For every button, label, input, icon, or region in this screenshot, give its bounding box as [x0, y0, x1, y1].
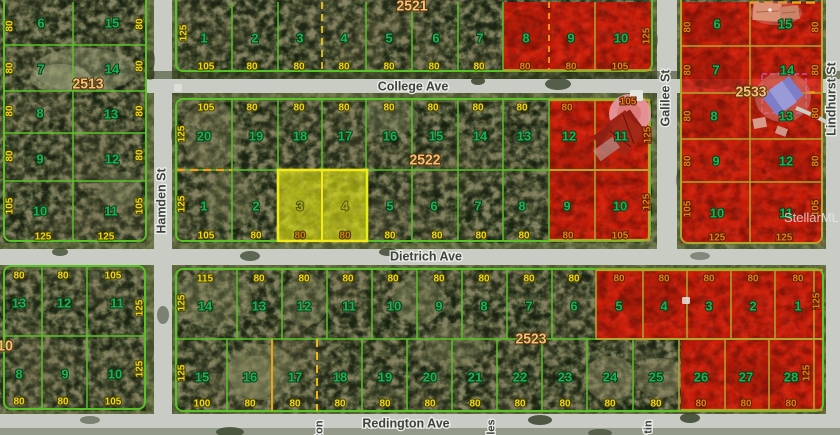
svg-text:7: 7	[525, 299, 532, 314]
svg-text:9: 9	[435, 299, 442, 314]
svg-text:80: 80	[811, 21, 822, 33]
svg-text:80: 80	[683, 155, 694, 167]
svg-text:19: 19	[378, 370, 392, 385]
svg-text:105: 105	[612, 62, 629, 73]
svg-text:10: 10	[108, 367, 122, 382]
svg-text:2521: 2521	[397, 0, 428, 15]
svg-text:80: 80	[604, 399, 616, 410]
svg-text:9: 9	[567, 31, 574, 46]
svg-text:80: 80	[5, 20, 16, 32]
svg-text:80: 80	[478, 274, 490, 285]
svg-text:105: 105	[5, 197, 16, 214]
svg-text:11: 11	[104, 204, 118, 219]
svg-text:8: 8	[480, 299, 487, 314]
svg-text:28: 28	[784, 370, 798, 385]
svg-text:16: 16	[243, 370, 257, 385]
svg-text:10: 10	[387, 299, 401, 314]
svg-text:80: 80	[13, 271, 25, 282]
svg-text:14: 14	[198, 299, 213, 314]
svg-text:125: 125	[135, 360, 146, 377]
svg-text:18: 18	[293, 129, 307, 144]
svg-text:9: 9	[61, 367, 68, 382]
svg-text:80: 80	[428, 62, 440, 73]
svg-text:80: 80	[703, 274, 715, 285]
svg-text:80: 80	[5, 62, 16, 74]
svg-text:80: 80	[135, 149, 146, 161]
svg-text:24: 24	[603, 370, 618, 385]
svg-text:1: 1	[794, 299, 801, 314]
svg-text:3: 3	[296, 199, 303, 214]
svg-text:Galilee St: Galilee St	[659, 69, 673, 127]
svg-text:125: 125	[177, 195, 188, 212]
svg-text:6: 6	[713, 17, 720, 32]
svg-text:9: 9	[563, 199, 570, 214]
svg-text:15: 15	[778, 17, 792, 32]
svg-text:80: 80	[811, 107, 822, 119]
svg-text:19: 19	[249, 129, 263, 144]
svg-text:80: 80	[792, 274, 804, 285]
svg-text:6: 6	[37, 16, 44, 31]
svg-text:9: 9	[712, 154, 719, 169]
svg-text:125: 125	[135, 299, 146, 316]
svg-text:80: 80	[431, 231, 443, 242]
svg-text:80: 80	[518, 231, 530, 242]
svg-text:8: 8	[15, 367, 22, 382]
svg-text:8: 8	[518, 199, 525, 214]
svg-text:7: 7	[476, 31, 483, 46]
svg-text:125: 125	[179, 24, 190, 41]
svg-text:25: 25	[649, 370, 663, 385]
svg-text:80: 80	[379, 399, 391, 410]
svg-text:80: 80	[338, 62, 350, 73]
svg-text:22: 22	[513, 370, 527, 385]
svg-text:125: 125	[642, 27, 653, 44]
svg-text:3: 3	[705, 299, 712, 314]
svg-text:80: 80	[383, 103, 395, 114]
svg-text:6: 6	[432, 31, 439, 46]
svg-text:2513: 2513	[73, 77, 104, 93]
svg-text:80: 80	[289, 399, 301, 410]
svg-text:13: 13	[12, 296, 26, 311]
svg-text:13: 13	[779, 109, 793, 124]
svg-text:4: 4	[341, 199, 349, 214]
svg-text:Dietrich Ave: Dietrich Ave	[390, 250, 462, 264]
svg-text:100: 100	[194, 399, 211, 410]
svg-text:12: 12	[297, 299, 311, 314]
svg-text:18: 18	[333, 370, 347, 385]
svg-text:11: 11	[614, 129, 628, 144]
svg-text:80: 80	[244, 399, 256, 410]
svg-text:6: 6	[430, 199, 437, 214]
svg-text:12: 12	[105, 152, 119, 167]
svg-text:80: 80	[568, 274, 580, 285]
svg-text:80: 80	[57, 271, 69, 282]
svg-text:14: 14	[473, 129, 488, 144]
svg-text:80: 80	[519, 62, 531, 73]
svg-text:80: 80	[342, 274, 354, 285]
svg-text:5: 5	[615, 299, 622, 314]
svg-text:80: 80	[683, 64, 694, 76]
svg-text:12: 12	[57, 296, 71, 311]
svg-text:80: 80	[135, 105, 146, 117]
svg-text:80: 80	[613, 274, 625, 285]
svg-text:20: 20	[423, 370, 437, 385]
svg-text:9: 9	[36, 152, 43, 167]
svg-text:80: 80	[5, 105, 16, 117]
svg-text:125: 125	[776, 233, 793, 244]
svg-text:80: 80	[740, 399, 752, 410]
svg-text:80: 80	[253, 274, 265, 285]
svg-text:80: 80	[250, 231, 262, 242]
svg-text:5: 5	[385, 31, 392, 46]
svg-text:80: 80	[294, 231, 306, 242]
svg-text:14: 14	[780, 63, 795, 78]
svg-text:les: les	[486, 419, 498, 434]
svg-text:80: 80	[433, 274, 445, 285]
svg-text:14: 14	[105, 62, 120, 77]
svg-text:105: 105	[105, 397, 122, 408]
svg-text:80: 80	[135, 18, 146, 30]
svg-text:105: 105	[198, 62, 215, 73]
svg-text:8: 8	[710, 109, 717, 124]
svg-text:Redington Ave: Redington Ave	[362, 417, 449, 431]
svg-text:1: 1	[200, 199, 207, 214]
svg-text:College Ave: College Ave	[378, 80, 449, 94]
svg-text:8: 8	[36, 106, 43, 121]
svg-text:ton: ton	[314, 420, 326, 435]
svg-text:3: 3	[296, 31, 303, 46]
svg-text:2: 2	[252, 199, 259, 214]
svg-text:26: 26	[694, 370, 708, 385]
svg-text:2533: 2533	[736, 85, 767, 101]
svg-text:15: 15	[195, 370, 209, 385]
svg-text:80: 80	[293, 62, 305, 73]
svg-text:105: 105	[198, 231, 215, 242]
svg-text:80: 80	[658, 274, 670, 285]
svg-text:16: 16	[383, 129, 397, 144]
svg-text:125: 125	[98, 232, 115, 243]
svg-text:80: 80	[811, 64, 822, 76]
svg-text:80: 80	[424, 399, 436, 410]
svg-text:11: 11	[342, 299, 356, 314]
svg-text:5: 5	[386, 199, 393, 214]
svg-text:80: 80	[387, 274, 399, 285]
svg-text:13: 13	[517, 129, 531, 144]
svg-text:80: 80	[562, 231, 574, 242]
svg-text:80: 80	[559, 399, 571, 410]
svg-text:105: 105	[612, 231, 629, 242]
svg-text:17: 17	[288, 370, 302, 385]
svg-text:125: 125	[802, 364, 813, 381]
svg-text:80: 80	[514, 399, 526, 410]
svg-text:125: 125	[177, 364, 188, 381]
svg-text:80: 80	[785, 399, 797, 410]
svg-text:125: 125	[643, 126, 654, 143]
svg-text:80: 80	[334, 399, 346, 410]
svg-text:80: 80	[298, 274, 310, 285]
svg-text:tin: tin	[643, 420, 655, 434]
svg-text:80: 80	[650, 399, 662, 410]
svg-text:13: 13	[104, 107, 118, 122]
svg-text:80: 80	[246, 62, 258, 73]
svg-text:105: 105	[620, 97, 637, 108]
svg-text:17: 17	[338, 129, 352, 144]
svg-text:105: 105	[198, 103, 215, 114]
svg-text:2523: 2523	[516, 332, 547, 348]
svg-text:80: 80	[384, 231, 396, 242]
svg-text:21: 21	[468, 370, 482, 385]
svg-text:10: 10	[710, 206, 724, 221]
svg-text:80: 80	[383, 62, 395, 73]
svg-text:105: 105	[105, 271, 122, 282]
svg-text:7: 7	[37, 62, 44, 77]
svg-text:80: 80	[475, 231, 487, 242]
svg-text:80: 80	[565, 62, 577, 73]
svg-text:11: 11	[110, 296, 124, 311]
svg-text:125: 125	[642, 193, 653, 210]
svg-text:4: 4	[660, 299, 668, 314]
svg-text:7: 7	[474, 199, 481, 214]
svg-text:2: 2	[251, 31, 258, 46]
svg-text:80: 80	[523, 274, 535, 285]
svg-text:13: 13	[252, 299, 266, 314]
svg-text:125: 125	[177, 294, 188, 311]
svg-text:8: 8	[522, 31, 529, 46]
svg-text:15: 15	[429, 129, 443, 144]
svg-text:125: 125	[177, 125, 188, 142]
svg-text:105: 105	[135, 197, 146, 214]
svg-text:Lindhurst St: Lindhurst St	[825, 61, 839, 135]
svg-text:23: 23	[558, 370, 572, 385]
svg-text:80: 80	[469, 399, 481, 410]
svg-text:125: 125	[709, 233, 726, 244]
svg-text:105: 105	[683, 200, 694, 217]
svg-text:80: 80	[472, 103, 484, 114]
svg-text:4: 4	[340, 31, 348, 46]
svg-text:12: 12	[779, 154, 793, 169]
svg-text:115: 115	[197, 274, 214, 285]
svg-text:125: 125	[812, 292, 823, 309]
svg-text:80: 80	[427, 103, 439, 114]
svg-text:80: 80	[57, 397, 69, 408]
svg-text:80: 80	[5, 150, 16, 162]
svg-text:Hamden St: Hamden St	[155, 168, 169, 234]
svg-text:12: 12	[562, 129, 576, 144]
svg-text:StellarMLS: StellarMLS	[784, 210, 840, 225]
svg-text:2: 2	[749, 299, 756, 314]
svg-text:80: 80	[13, 397, 25, 408]
svg-text:80: 80	[246, 103, 258, 114]
svg-text:80: 80	[561, 103, 573, 114]
svg-text:6: 6	[570, 299, 577, 314]
svg-text:10: 10	[613, 199, 627, 214]
svg-text:10: 10	[0, 339, 13, 355]
svg-text:7: 7	[712, 63, 719, 78]
svg-text:80: 80	[473, 62, 485, 73]
svg-text:80: 80	[293, 103, 305, 114]
svg-text:80: 80	[338, 103, 350, 114]
svg-text:125: 125	[35, 232, 52, 243]
svg-text:10: 10	[614, 31, 628, 46]
svg-text:2522: 2522	[410, 153, 441, 169]
svg-text:80: 80	[135, 60, 146, 72]
svg-text:80: 80	[339, 231, 351, 242]
svg-text:20: 20	[197, 129, 211, 144]
svg-text:10: 10	[33, 204, 47, 219]
svg-text:80: 80	[811, 155, 822, 167]
svg-text:1: 1	[200, 31, 207, 46]
svg-text:15: 15	[105, 16, 119, 31]
svg-text:80: 80	[516, 103, 528, 114]
svg-text:27: 27	[739, 370, 753, 385]
svg-text:80: 80	[683, 110, 694, 122]
svg-text:80: 80	[747, 274, 759, 285]
svg-text:80: 80	[683, 21, 694, 33]
svg-text:80: 80	[695, 399, 707, 410]
